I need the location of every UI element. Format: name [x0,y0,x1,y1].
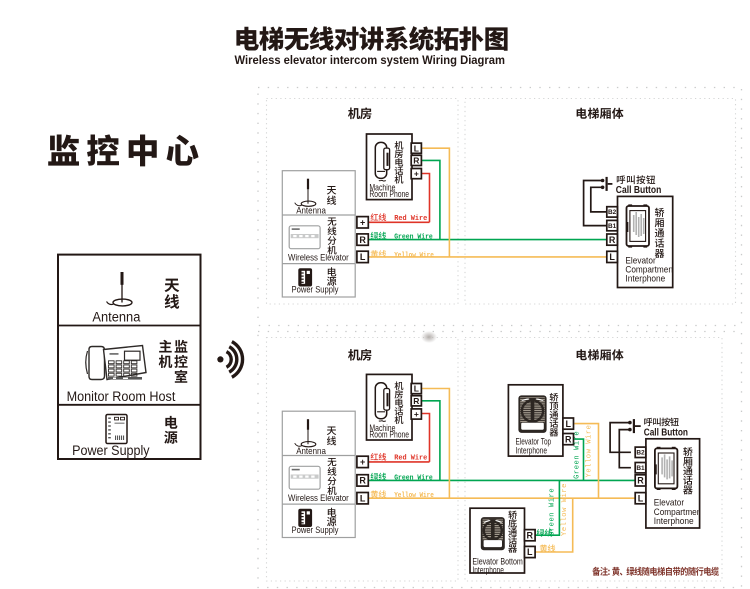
svg-text:Interphone: Interphone [654,516,694,526]
svg-text:Call Button: Call Button [644,428,688,439]
svg-text:L: L [609,252,615,262]
svg-text:Interphone: Interphone [472,565,504,575]
svg-text:Antenna: Antenna [92,309,140,324]
svg-text:L: L [565,419,571,429]
svg-text:Interphone: Interphone [625,273,665,283]
svg-text:Green Wire: Green Wire [548,488,556,536]
svg-text:B1: B1 [608,223,617,230]
svg-text:R: R [609,235,616,245]
svg-text:R: R [359,235,366,245]
svg-text:L: L [527,547,533,557]
svg-text:Power Supply: Power Supply [72,443,150,458]
svg-text:Green Wire: Green Wire [394,234,433,242]
svg-text:L: L [360,493,366,503]
svg-text:R: R [359,476,366,486]
svg-text:+: + [360,457,365,467]
svg-text:B1: B1 [636,465,645,472]
svg-text:L: L [638,493,644,503]
svg-text:R: R [413,396,419,406]
svg-text:Interphone: Interphone [516,445,548,455]
svg-text:Monitor Room Host: Monitor Room Host [67,389,176,404]
svg-text:L: L [414,384,419,394]
svg-text:R: R [413,155,419,165]
svg-text:L: L [360,252,366,262]
svg-text:+: + [360,218,365,228]
svg-text:Yellow Wire: Yellow Wire [394,492,434,500]
svg-text:Wireless elevator intercom sys: Wireless elevator intercom system Wiring… [235,53,506,67]
svg-text:R: R [527,530,534,540]
svg-text:Red Wire: Red Wire [394,215,427,223]
svg-text:Yellow Wire: Yellow Wire [561,483,569,536]
svg-text:Green Wire: Green Wire [573,431,581,479]
svg-text:Wireless Elevator: Wireless Elevator [288,493,349,504]
svg-text:+: + [414,409,419,419]
svg-text:Yellow Wire: Yellow Wire [394,252,434,260]
svg-text:Room Phone: Room Phone [369,189,409,199]
svg-text:Red Wire: Red Wire [394,455,427,463]
svg-text:Wireless Elevator: Wireless Elevator [288,252,349,263]
svg-text:Room Phone: Room Phone [369,430,409,440]
svg-text:R: R [637,476,644,486]
svg-text:Antenna: Antenna [296,446,326,457]
svg-text:+: + [414,169,419,179]
svg-text:Call Button: Call Button [616,185,662,196]
svg-text:Antenna: Antenna [296,205,326,216]
svg-text:Green Wire: Green Wire [394,475,433,483]
svg-text:R: R [565,434,572,444]
svg-text:Power Supply: Power Supply [292,284,339,295]
svg-text:B2: B2 [608,209,617,216]
svg-text:B2: B2 [636,450,645,457]
svg-text:Yellow Wire: Yellow Wire [585,425,593,478]
svg-text:L: L [414,143,419,153]
svg-text:Power Supply: Power Supply [292,525,339,536]
